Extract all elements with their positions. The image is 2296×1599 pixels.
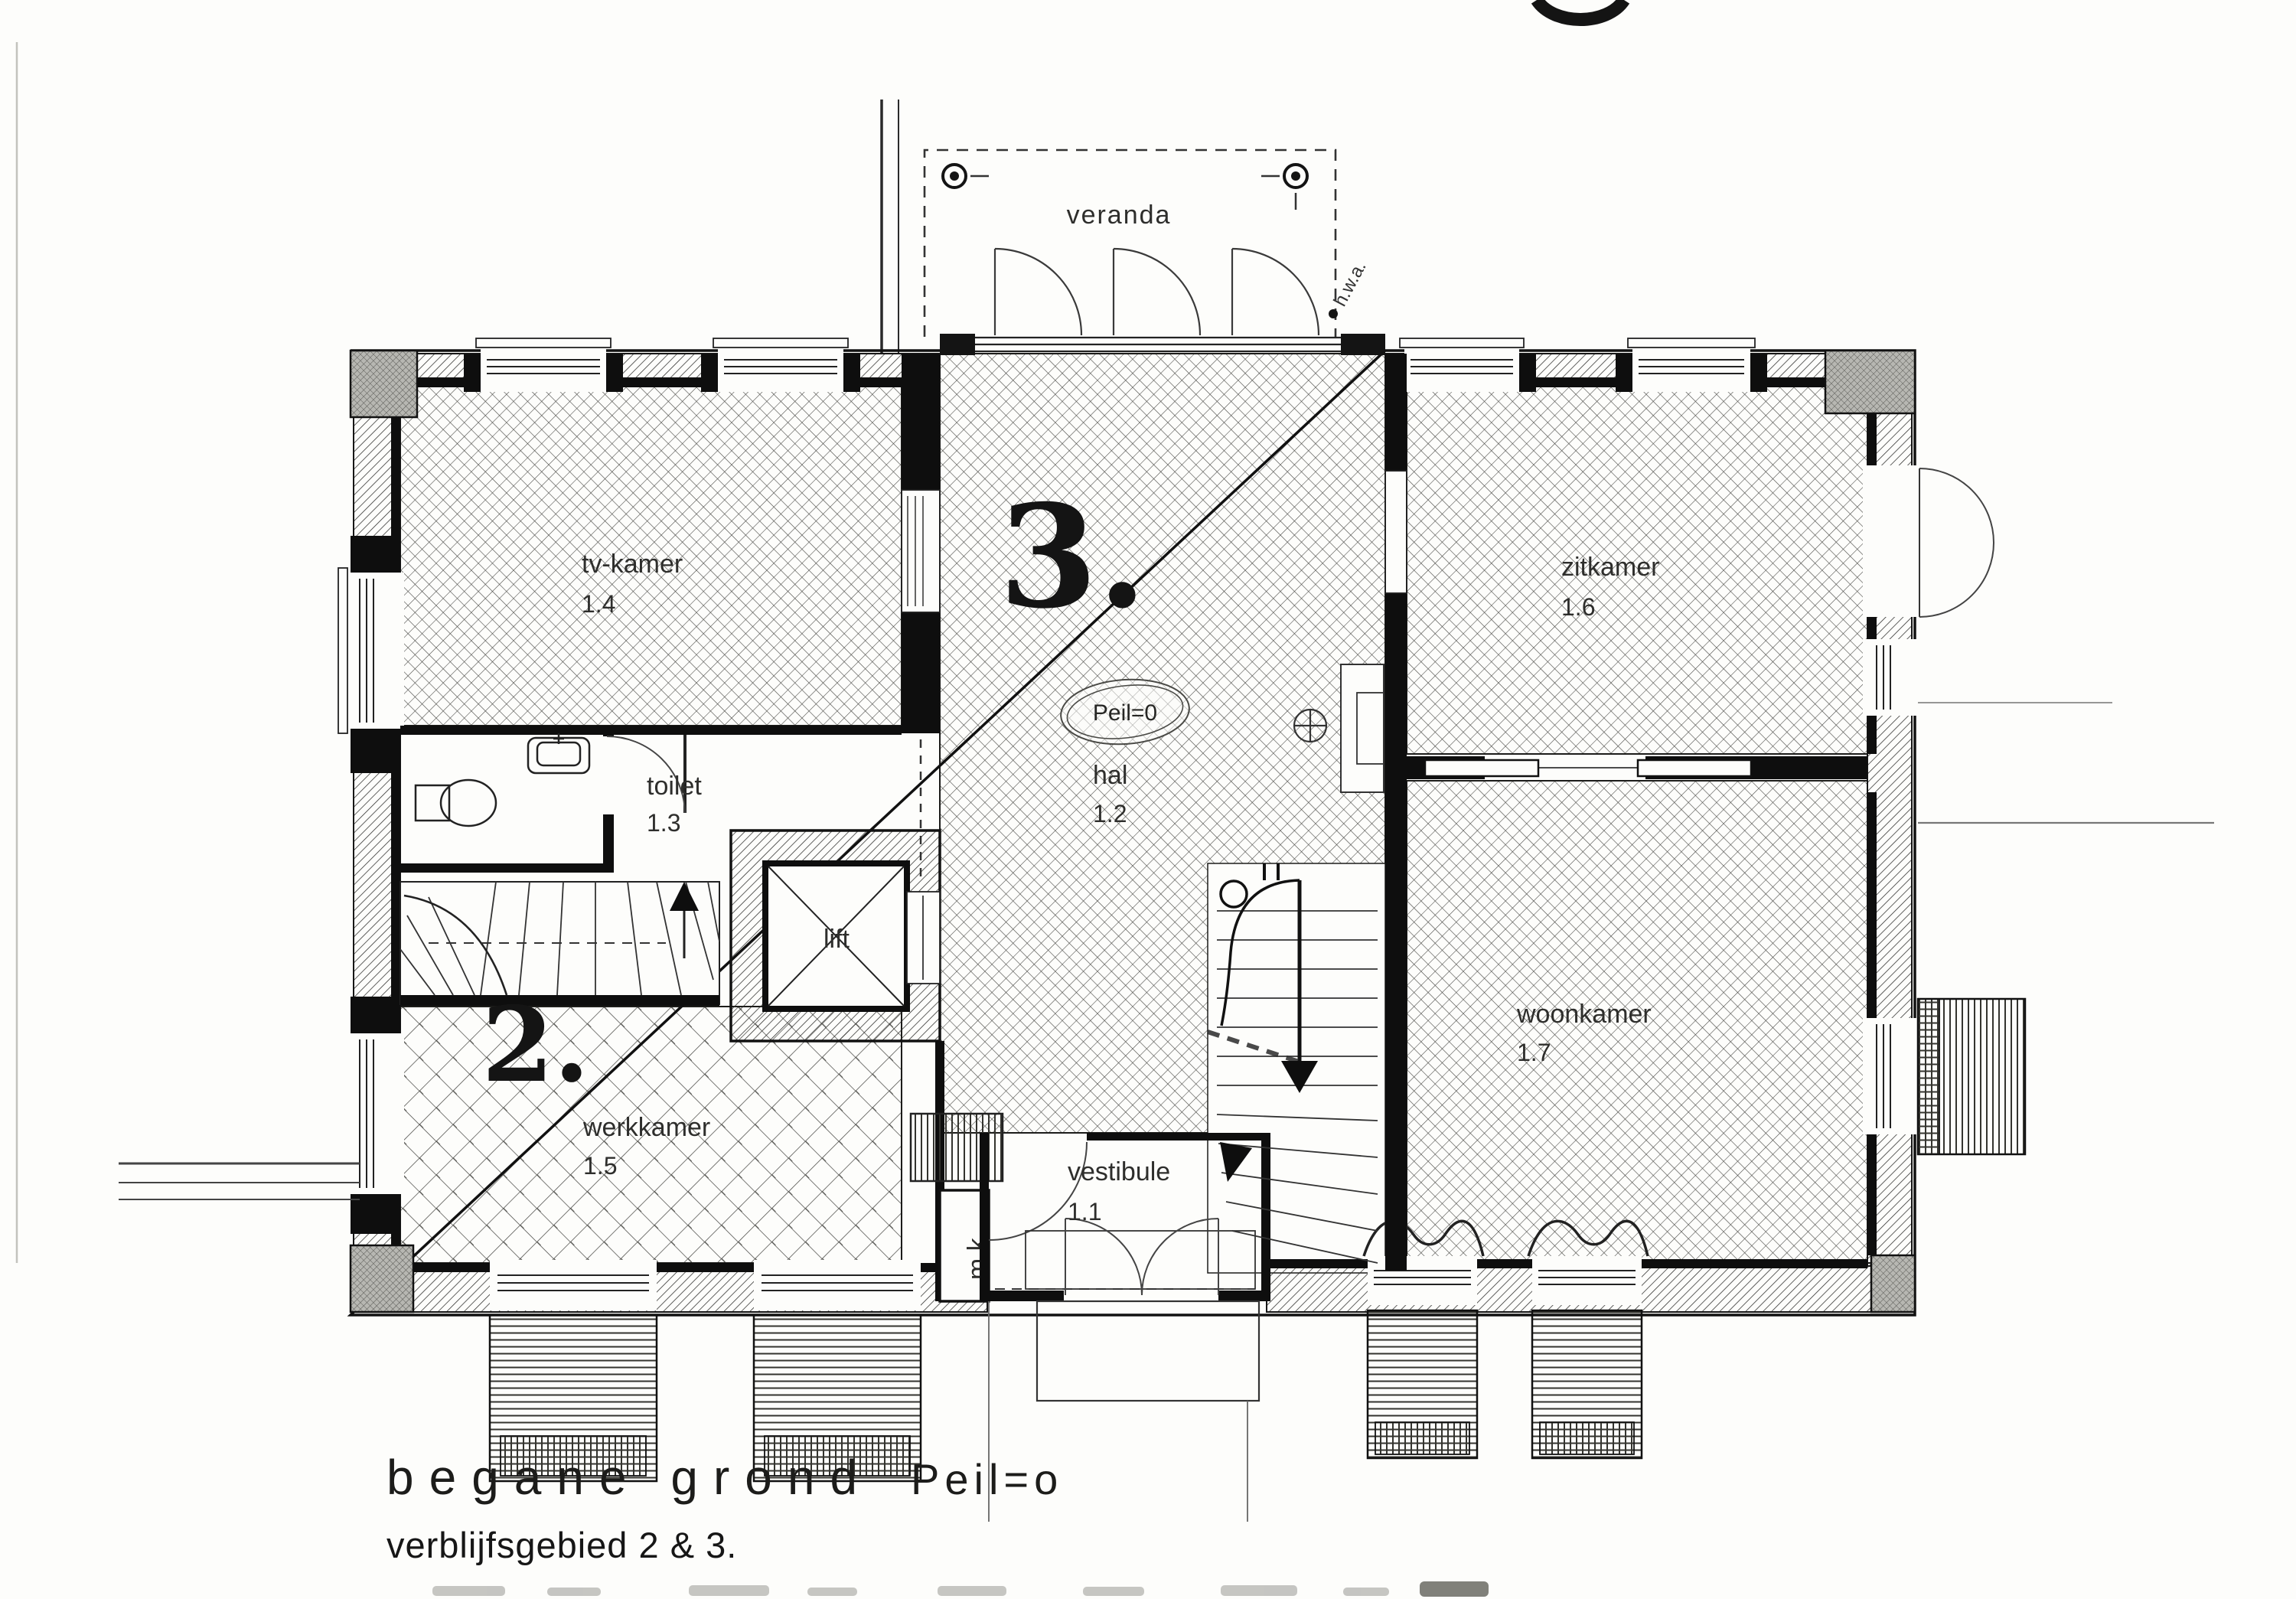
window-right-2 [1863, 1018, 1916, 1134]
caption-subtitle: verblijfsgebied 2 & 3. [386, 1525, 737, 1565]
veranda-jamb-left [940, 334, 975, 355]
room-number-toilet: 1.3 [647, 809, 680, 837]
hwa-drainpipe-dot [1329, 309, 1338, 318]
washbasin-fixture [528, 733, 589, 773]
hwa-label: h.w.a. [1329, 258, 1370, 310]
room-label-werkkamer: werkkamer [582, 1113, 710, 1142]
veranda-jamb-right [1341, 334, 1385, 355]
entry-double-doors [1065, 1219, 1218, 1295]
window-bottom-4 [1532, 1256, 1642, 1305]
window-left-2 [346, 1033, 404, 1194]
room-number-werkkamer: 1.5 [583, 1152, 617, 1180]
window-top-3 [1400, 338, 1524, 392]
bay-bottom-3 [1368, 1310, 1477, 1458]
cropped-glyph-artifact [1537, 0, 1624, 20]
room-label-hal: hal [1093, 761, 1127, 790]
ensuite-sliding-wall [1407, 756, 1867, 779]
sliding-door-panel-right [1638, 760, 1751, 776]
window-right-1 [1863, 639, 1916, 716]
wall-tvkamer-hal [902, 354, 940, 879]
wc-fixture [416, 780, 496, 826]
veranda-post-left [943, 165, 989, 188]
sliding-door-panel-left [1425, 760, 1538, 776]
hal-wall-cabinet [1341, 664, 1384, 792]
window-top-4 [1628, 338, 1755, 392]
zone-label-2: 2. [482, 984, 590, 1105]
window-bottom-1 [490, 1260, 657, 1310]
window-top-1 [476, 338, 611, 392]
room-number-hal: 1.2 [1093, 800, 1127, 827]
window-bottom-2 [754, 1260, 921, 1310]
property-lines-left [119, 1163, 360, 1199]
lift-shaft: lift [731, 831, 940, 1041]
veranda-dashed-outline [925, 150, 1336, 337]
room-number-vestibule: 1.1 [1068, 1198, 1101, 1225]
peil-badge-text: Peil=0 [1093, 700, 1157, 726]
room-number-tvkamer: 1.4 [582, 590, 615, 618]
room-label-tvkamer: tv-kamer [582, 550, 683, 579]
french-doors-right [1863, 465, 1994, 617]
caption: begane grond Peil=o verblijfsgebied 2 & … [386, 1450, 1063, 1565]
door-hal-zitkamer [1385, 471, 1407, 593]
veranda-folding-doors [995, 249, 1319, 335]
radiator-valve-symbol [1294, 710, 1326, 742]
window-bottom-3 [1368, 1256, 1477, 1305]
bay-bottom-4 [1532, 1310, 1642, 1458]
bay-right [1918, 999, 2025, 1154]
room-number-zitkamer: 1.6 [1561, 593, 1595, 621]
bottom-edge-dark-smudge [1420, 1581, 1489, 1597]
caption-level: Peil=o [911, 1455, 1063, 1503]
veranda-post-right [1261, 165, 1307, 210]
floor-plan-page: h.w.a. veranda [0, 0, 2296, 1599]
window-top-2 [713, 338, 848, 392]
zone-label-3: 3. [999, 473, 1146, 640]
veranda-area: h.w.a. veranda [925, 150, 1385, 355]
veranda-sill-lines [940, 338, 1385, 351]
room-label-vestibule: vestibule [1068, 1157, 1170, 1186]
room-number-woonkamer: 1.7 [1517, 1039, 1551, 1066]
bottom-edge-smudges [432, 1585, 1389, 1596]
room-label-woonkamer: woonkamer [1516, 1000, 1652, 1029]
room-label-lift: lift [823, 925, 850, 954]
room-label-veranda: veranda [1067, 201, 1172, 230]
caption-title: begane grond [386, 1450, 872, 1505]
room-label-toilet: toilet [647, 772, 702, 801]
floor-plan-drawing: h.w.a. veranda [0, 0, 2296, 1599]
room-label-zitkamer: zitkamer [1561, 553, 1659, 582]
window-left-1 [338, 568, 404, 733]
